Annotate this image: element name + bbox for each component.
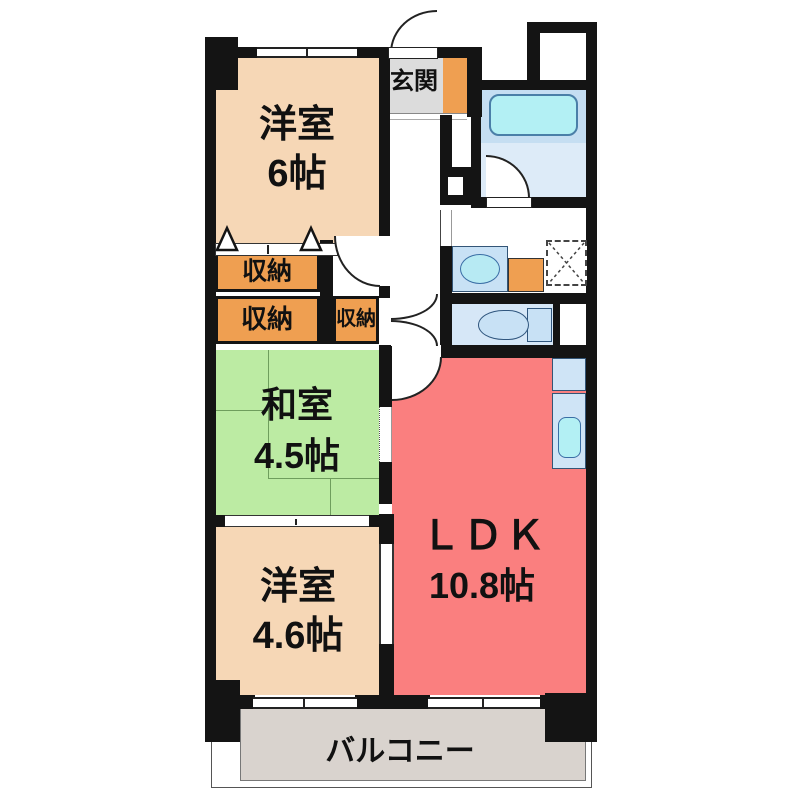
tatami-line [268, 478, 379, 479]
wall [440, 293, 586, 304]
wall [379, 58, 390, 236]
japanese-room-size: 4.5帖 [254, 438, 340, 474]
western-room-6-size: 6帖 [267, 155, 326, 193]
washing-machine-space [546, 240, 587, 286]
wall [586, 22, 597, 702]
wall-corner-block [205, 680, 240, 742]
sliding-door-opening [225, 515, 369, 527]
bedroom6-door-arc [334, 236, 380, 287]
vanity-sink [460, 254, 500, 284]
window [257, 47, 357, 58]
wall [379, 352, 392, 407]
wall-pocket [448, 177, 463, 195]
toilet-tank [527, 308, 552, 342]
toilet-bowl [478, 310, 529, 340]
wall [379, 514, 394, 544]
wall-corner-block [545, 693, 597, 742]
wall [471, 85, 481, 199]
tatami-line [330, 478, 331, 515]
window [253, 697, 357, 709]
washroom-entry-opening [440, 210, 452, 246]
wall [356, 47, 392, 58]
ldk-size: 10.8帖 [429, 568, 535, 604]
hall-double-door-upper-arc [391, 294, 438, 320]
bathroom-door-leaf [486, 197, 532, 208]
wall [440, 115, 452, 169]
opening [379, 504, 392, 514]
balcony-label: バルコニー [325, 737, 474, 767]
wall [355, 695, 430, 709]
wall [553, 304, 560, 345]
washroom-cabinet [508, 258, 544, 292]
floor-plan: 玄関 洋室 6帖 収納 収納 収納 和室 4.5帖 洋室 4.6帖 ＬＤＫ 10… [0, 0, 800, 800]
wall [320, 296, 333, 344]
western-room-6-floor [216, 58, 379, 243]
wall [369, 515, 381, 527]
wall [205, 58, 216, 700]
bathtub [489, 94, 578, 136]
entrance-step-line [387, 113, 467, 114]
storage-2-label: 収納 [241, 306, 293, 332]
wall [441, 345, 586, 358]
hall-double-door-lower-arc [391, 320, 438, 346]
wall [379, 644, 394, 700]
wall [379, 286, 390, 298]
japanese-room-floor [216, 350, 379, 515]
storage-1-label: 収納 [242, 260, 292, 285]
entrance-label: 玄関 [390, 70, 438, 94]
wall [527, 22, 540, 82]
closet-fold-marks [205, 225, 345, 253]
entrance-door-leaf [388, 47, 438, 59]
wall [215, 47, 259, 58]
wall [215, 515, 225, 527]
wall [379, 462, 392, 504]
window [428, 697, 540, 709]
pipe-space [560, 304, 586, 345]
western-room-46-size: 4.6帖 [253, 617, 344, 655]
storage-3-label: 収納 [336, 309, 376, 329]
sliding-door-opening [379, 407, 392, 462]
western-room-6-label: 洋室 [259, 106, 335, 144]
entrance-step-line-2 [387, 119, 467, 120]
kitchen-sink [558, 417, 581, 458]
refrigerator-space [552, 358, 586, 391]
wall [436, 47, 470, 58]
western-room-46-label: 洋室 [260, 568, 336, 606]
ldk-label: ＬＤＫ [421, 516, 547, 556]
sliding-door-opening [379, 544, 394, 644]
entrance-shoe-cabinet [443, 57, 467, 113]
japanese-room-label: 和室 [261, 387, 333, 423]
western-room-46-floor [216, 527, 379, 695]
